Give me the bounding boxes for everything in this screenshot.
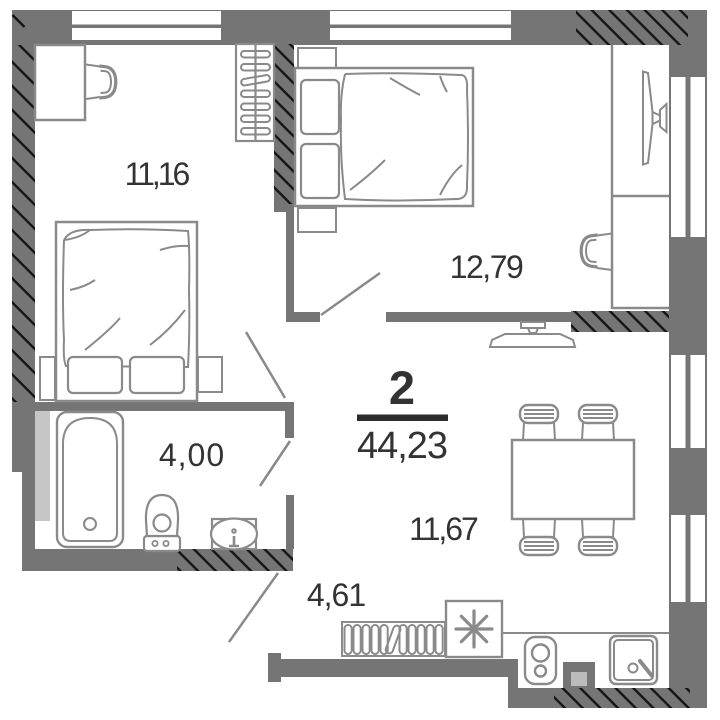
svg-text:11,16: 11,16: [125, 156, 190, 192]
svg-text:44,23: 44,23: [357, 425, 447, 467]
svg-text:4,00: 4,00: [159, 437, 225, 473]
svg-text:2: 2: [389, 361, 415, 414]
svg-text:12,79: 12,79: [450, 249, 523, 285]
svg-text:4,61: 4,61: [307, 577, 365, 613]
svg-text:11,67: 11,67: [409, 511, 478, 547]
